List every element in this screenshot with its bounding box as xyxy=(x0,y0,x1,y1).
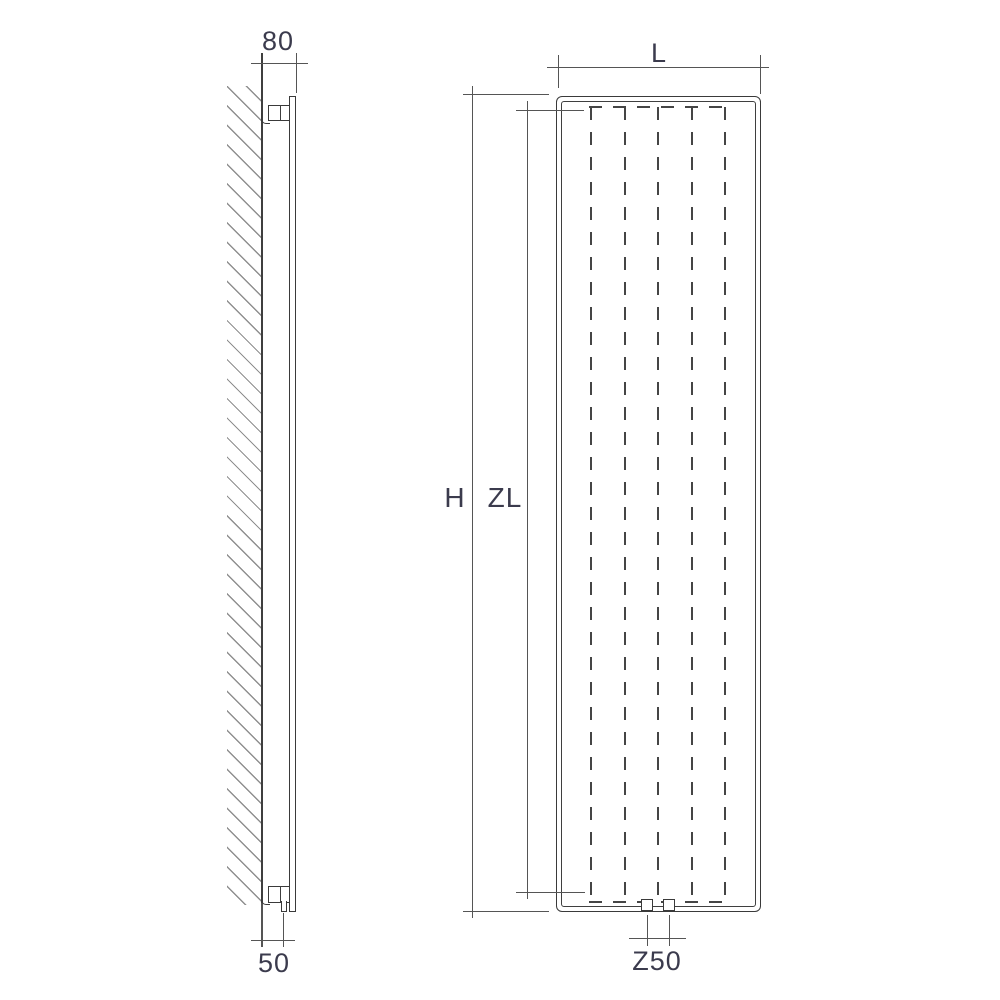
dim-H-line xyxy=(472,86,473,918)
wall-hatch xyxy=(227,86,262,905)
dim-80-line xyxy=(251,63,308,64)
dim-H-label: H xyxy=(444,484,465,512)
dim-L-extension-left xyxy=(558,55,559,88)
dim-50-extension-line xyxy=(283,913,284,947)
bottom-connection-stub xyxy=(281,901,288,912)
dim-ZL-line xyxy=(527,101,528,899)
channel-dashed-line-3 xyxy=(657,107,659,902)
channel-dashed-line-5 xyxy=(724,107,726,902)
top-bracket-arm xyxy=(268,105,289,122)
dim-H-extension-bottom xyxy=(463,911,549,912)
dim-80-extension-line xyxy=(296,53,297,93)
dim-Z50-line xyxy=(629,938,686,939)
dim-80-label: 80 xyxy=(262,28,294,55)
channel-dashed-line-1 xyxy=(590,107,592,902)
channel-dashed-line-2 xyxy=(624,107,626,902)
top-bracket-divider xyxy=(280,105,282,122)
dim-Z50-extension-left xyxy=(647,915,648,946)
dim-ZL-extension-top xyxy=(516,110,584,111)
dim-50-label: 50 xyxy=(258,950,290,977)
dim-L-label: L xyxy=(651,40,667,67)
dim-Z50-label: Z50 xyxy=(632,948,682,975)
radiator-panel-profile xyxy=(289,96,296,912)
connection-nozzle-right xyxy=(663,899,676,911)
dim-50-line xyxy=(251,940,295,941)
dim-Z50-extension-right xyxy=(669,915,670,946)
dim-L-extension-right xyxy=(760,55,761,94)
dim-ZL-label: ZL xyxy=(488,484,523,512)
radiator-dimension-drawing: 80 50 L H ZL xyxy=(0,0,1000,1000)
channel-dashed-line-4 xyxy=(691,107,693,902)
connection-nozzle-left xyxy=(641,899,654,911)
dim-H-extension-top xyxy=(463,94,549,95)
dim-ZL-extension-bottom xyxy=(516,892,585,893)
wall-face-line xyxy=(261,53,264,903)
